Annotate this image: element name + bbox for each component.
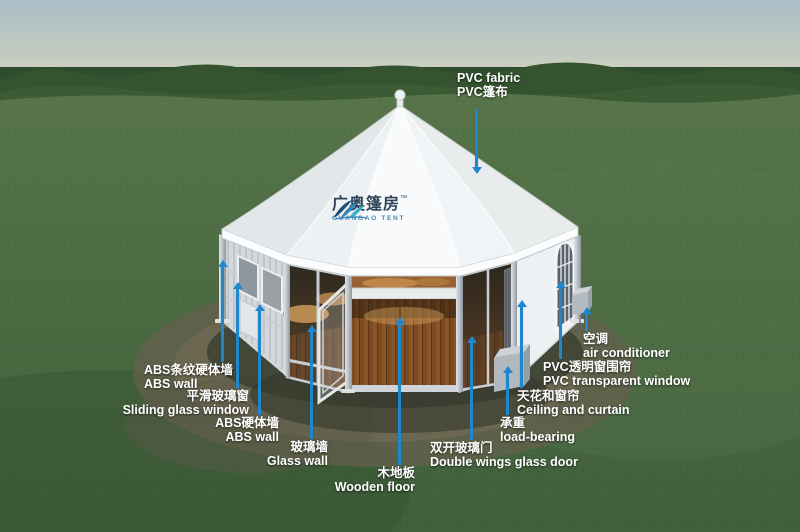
leader-abs-striped-wall (221, 266, 224, 362)
arrow-up-icon (307, 325, 317, 332)
arrow-up-icon (218, 260, 228, 267)
callout-line2: PVC transparent window (543, 375, 690, 389)
leader-sliding-glass-window (236, 288, 239, 388)
callout-glass-wall: 玻璃墙 Glass wall (267, 441, 328, 468)
arrow-up-icon (467, 336, 477, 343)
logo-trademark: ™ (400, 195, 407, 202)
callout-line2: Sliding glass window (123, 404, 249, 418)
callout-sliding-glass-window: 平滑玻璃窗 Sliding glass window (123, 390, 249, 417)
roof-logo: 广奥篷房 ™ GUANGAO TENT (332, 196, 407, 222)
arrow-up-icon (255, 304, 265, 311)
callout-line1: 木地板 (335, 467, 415, 481)
callout-wooden-floor: 木地板 Wooden floor (335, 467, 415, 494)
arrow-up-icon (517, 300, 527, 307)
arrow-up-icon (582, 307, 592, 314)
callout-ceiling-and-curtain: 天花和窗帘 Ceiling and curtain (517, 390, 630, 417)
logo-mark-mountains-icon (332, 196, 370, 223)
callout-line2: Glass wall (267, 455, 328, 469)
callout-air-conditioner: 空调 air conditioner (583, 333, 670, 360)
callout-double-wings-glass-door: 双开玻璃门 Double wings glass door (430, 442, 578, 469)
callout-line2: air conditioner (583, 347, 670, 361)
tent-annotated-render: 广奥篷房 ™ GUANGAO TENT PVC fabric PVC篷布 ABS… (0, 0, 800, 532)
callout-abs-wall: ABS硬体墙 ABS wall (215, 417, 279, 444)
leader-air-conditioner (585, 313, 588, 331)
callout-line1: 平滑玻璃窗 (123, 390, 249, 404)
callout-line2: Ceiling and curtain (517, 404, 630, 418)
leader-wooden-floor (398, 323, 401, 465)
callout-pvc-fabric: PVC fabric PVC篷布 (457, 72, 520, 99)
callout-line2: PVC篷布 (457, 86, 520, 100)
callout-line1: 承重 (500, 417, 575, 431)
leader-glass-wall (310, 331, 313, 439)
callout-line1: 玻璃墙 (267, 441, 328, 455)
leader-abs-wall (258, 310, 261, 415)
callout-line1: 空调 (583, 333, 670, 347)
callout-line1: PVC fabric (457, 72, 520, 86)
leader-load-bearing (506, 372, 509, 415)
callout-line2: Wooden floor (335, 481, 415, 495)
callout-line1: ABS条纹硬体墙 (144, 364, 233, 378)
leader-pvc-fabric (475, 108, 478, 168)
front-door-section (348, 276, 462, 392)
arrow-up-icon (233, 282, 243, 289)
callout-pvc-transparent-window: PVC透明窗围帘 PVC transparent window (543, 361, 690, 388)
callout-line1: PVC透明窗围帘 (543, 361, 690, 375)
leader-pvc-transparent-window (559, 287, 562, 359)
door-threshold (349, 385, 462, 392)
arrow-up-icon (556, 281, 566, 288)
leader-ceiling-and-curtain (520, 306, 523, 388)
arrow-up-icon (503, 366, 513, 373)
leader-double-wings-glass-door (470, 342, 473, 440)
callout-line2: Double wings glass door (430, 456, 578, 470)
door-lintel-beam (348, 288, 461, 299)
callout-line1: ABS硬体墙 (215, 417, 279, 431)
callout-line1: 双开玻璃门 (430, 442, 578, 456)
callout-line2: load-bearing (500, 431, 575, 445)
callout-load-bearing: 承重 load-bearing (500, 417, 575, 444)
arrow-down-icon (472, 167, 482, 174)
callout-abs-striped-wall: ABS条纹硬体墙 ABS wall (144, 364, 233, 391)
arrow-up-icon (395, 317, 405, 324)
callout-line1: 天花和窗帘 (517, 390, 630, 404)
